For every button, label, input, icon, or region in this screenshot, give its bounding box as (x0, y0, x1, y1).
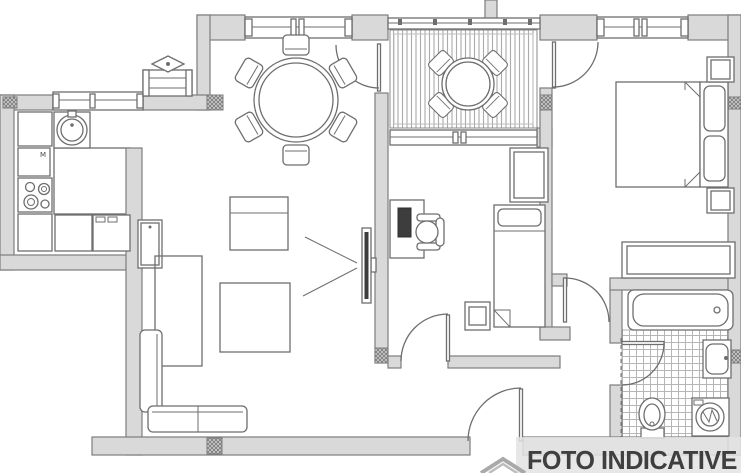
washbasin-icon (703, 340, 731, 378)
tv-view-line (305, 237, 357, 263)
wall-section-hatch (207, 438, 222, 454)
wall-section-hatch (207, 95, 223, 110)
wall-bath-left-upper (610, 286, 622, 343)
kitchen: M (18, 56, 192, 251)
wall-bath-left-lower (610, 385, 622, 437)
kitchen-tile-floor (54, 148, 130, 214)
wall-bottom-left (92, 437, 470, 455)
balcony-post (485, 0, 497, 20)
floor-plan-svg: M (0, 0, 741, 473)
living-room (138, 197, 376, 432)
tall-cabinet-icon (138, 220, 162, 268)
single-bed-icon (494, 205, 545, 327)
kitchen-fridge: M (18, 148, 50, 176)
kitchen-counter (55, 215, 92, 251)
wall-kitchen-top-right (143, 95, 210, 110)
balcony-railing (388, 18, 540, 29)
double-bed-icon (616, 82, 728, 187)
wall-section-hatch (375, 348, 388, 363)
window-study (390, 130, 537, 145)
wall-top-dining-right (352, 15, 388, 40)
round-dining-table-icon (254, 58, 338, 142)
wardrobe-icon (510, 148, 548, 202)
dining-chair-icon (283, 35, 309, 55)
wall-hall-jamb (388, 356, 401, 368)
kitchen-mark-label: M (40, 151, 46, 159)
office-chair-icon (416, 214, 444, 250)
wall-living-left (126, 148, 142, 455)
striped-chest-icon (220, 283, 290, 352)
kitchen-counter (18, 112, 52, 146)
wall-section-hatch (540, 95, 552, 110)
nightstand-icon (707, 188, 734, 213)
wall-kitchen-left (0, 95, 14, 270)
nightstand-icon (707, 57, 734, 82)
tv-stand-icon (230, 197, 288, 250)
bathtub-icon (628, 290, 733, 330)
radiator-icon (143, 56, 192, 96)
wall-section-hatch (728, 97, 741, 109)
stove-burners-icon (18, 178, 52, 212)
wall-hall-stub (540, 327, 570, 340)
tv-view-line (303, 268, 357, 296)
kitchen-counter-dishrack (93, 215, 130, 251)
door-balcony-bedroom (553, 42, 599, 88)
dining-area (234, 35, 358, 165)
main-bedroom (616, 57, 735, 278)
wardrobe-icon (622, 242, 735, 278)
wall-kitchen-bottom (0, 255, 142, 270)
study-room (390, 148, 548, 330)
window-kitchen (53, 92, 143, 110)
kitchen-sink-icon (54, 111, 90, 148)
wall-hall-north (448, 356, 560, 368)
door-entry (468, 388, 523, 441)
watermark: FOTO INDICATIVE (481, 437, 741, 473)
wall-top-bedroom-left (540, 15, 597, 40)
balcony-table-icon (442, 58, 494, 110)
dining-chair-icon (283, 145, 309, 165)
floor-plan-image: M (0, 0, 741, 473)
wall-bath-top (610, 278, 741, 290)
wall-living-divider (375, 93, 388, 363)
monitor-icon (398, 208, 411, 237)
window-bedroom (597, 17, 688, 38)
door-bedroom-hall (564, 278, 610, 322)
pillow-icon (704, 136, 725, 181)
watermark-label: FOTO INDICATIVE (527, 445, 737, 473)
tv-icon (303, 228, 376, 303)
stool-icon (465, 302, 490, 330)
wall-section-hatch (3, 97, 17, 108)
door-study (401, 314, 450, 361)
sofa-icon (140, 330, 247, 432)
washing-machine-icon (692, 398, 729, 436)
pillow-icon (704, 86, 725, 131)
toilet-icon (639, 398, 665, 438)
kitchen-counter (18, 214, 52, 251)
